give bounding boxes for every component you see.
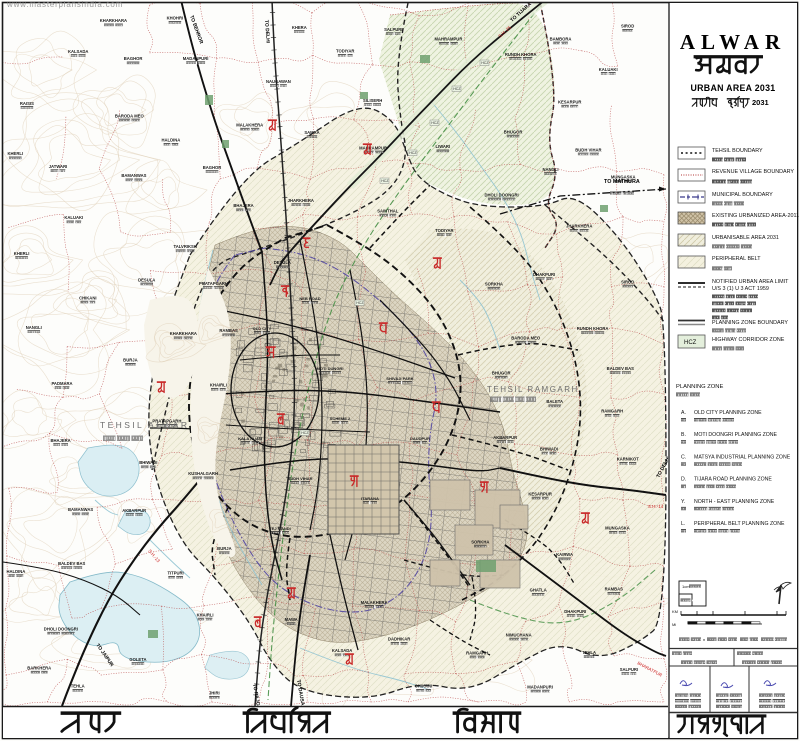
svg-text:MALAKHERA: MALAKHERA	[361, 600, 388, 605]
svg-text:BALDEV BAS: BALDEV BAS	[607, 366, 634, 371]
svg-text:KALUAKI: KALUAKI	[64, 215, 83, 220]
svg-text:MUNGASKA: MUNGASKA	[605, 526, 630, 531]
svg-text:TEHLA: TEHLA	[71, 684, 85, 689]
svg-text:TO MATHURA: TO MATHURA	[604, 179, 640, 185]
svg-text:BHAJERA: BHAJERA	[233, 203, 253, 208]
svg-text:EXISTING URBANIZED AREA-2011: EXISTING URBANIZED AREA-2011	[712, 213, 799, 219]
svg-text:RAMBAS: RAMBAS	[605, 587, 624, 592]
svg-text:TODIYAR: TODIYAR	[435, 228, 453, 233]
svg-text:HCZ: HCZ	[481, 61, 489, 65]
svg-text:TEJ MANDI: TEJ MANDI	[269, 526, 291, 531]
svg-text:BAMANWAS: BAMANWAS	[121, 173, 146, 178]
svg-text:SIROD: SIROD	[621, 24, 634, 29]
svg-text:BAGHOR: BAGHOR	[124, 56, 143, 61]
svg-text:SIROD: SIROD	[621, 279, 634, 284]
svg-text:REVENUE VILLAGE BOUNDARY: REVENUE VILLAGE BOUNDARY	[712, 169, 794, 175]
svg-text:KHERLI: KHERLI	[14, 251, 30, 256]
svg-text:TIJARA ROAD PLANNING ZONE: TIJARA ROAD PLANNING ZONE	[694, 477, 772, 483]
svg-text:HCZ: HCZ	[356, 301, 364, 305]
svg-text:JATWARI: JATWARI	[49, 164, 68, 169]
svg-text:RAISIS: RAISIS	[20, 101, 34, 106]
svg-text:GHATLA: GHATLA	[530, 588, 547, 593]
svg-text:SHIVAJI PARK: SHIVAJI PARK	[386, 376, 414, 381]
svg-text:DHOLI DOONGRI: DHOLI DOONGRI	[44, 627, 78, 632]
svg-text:JHARKHERA: JHARKHERA	[288, 198, 314, 203]
svg-text:ALWAR: ALWAR	[680, 30, 786, 54]
svg-text:SALPURI: SALPURI	[384, 27, 402, 32]
svg-text:DESULA: DESULA	[274, 260, 291, 265]
svg-text:NIMUCHANA: NIMUCHANA	[506, 632, 532, 637]
svg-text:HIGHWAY CORRIDOR ZONE: HIGHWAY CORRIDOR ZONE	[712, 337, 785, 343]
svg-text:KUSHALGARH: KUSHALGARH	[188, 471, 218, 476]
svg-text:TITPURI: TITPURI	[167, 571, 183, 576]
svg-text:www.masterplansindia.com: www.masterplansindia.com	[6, 0, 123, 9]
svg-text:MADANPURI: MADANPURI	[527, 684, 553, 689]
svg-text:KHOHRI: KHOHRI	[167, 16, 184, 21]
svg-text:BHIWADI: BHIWADI	[139, 460, 157, 465]
svg-text:BARODA MEO: BARODA MEO	[511, 336, 541, 341]
svg-text:URBAN AREA 2031: URBAN AREA 2031	[691, 83, 776, 93]
svg-text:SAMRA: SAMRA	[304, 130, 319, 135]
svg-text:D.: D.	[681, 477, 686, 483]
svg-text:KHERLI: KHERLI	[8, 151, 24, 156]
svg-text:BURJA: BURJA	[217, 546, 231, 551]
svg-text:MOTI DUNGRI: MOTI DUNGRI	[317, 366, 344, 371]
svg-text:DHAKPURI: DHAKPURI	[533, 272, 555, 277]
svg-text:MATSYA INDUSTRIAL PLANNING ZON: MATSYA INDUSTRIAL PLANNING ZONE	[694, 454, 791, 460]
svg-text:NANGLI: NANGLI	[26, 325, 42, 330]
svg-text:DAUDPUR: DAUDPUR	[410, 436, 430, 441]
svg-text:KALUAKI: KALUAKI	[599, 67, 618, 72]
svg-text:KHARKHARA: KHARKHARA	[170, 331, 197, 336]
svg-text:PRATAPGARH: PRATAPGARH	[199, 281, 228, 286]
svg-text:DHAKPURI: DHAKPURI	[564, 609, 586, 614]
svg-text:CHIKANI: CHIKANI	[415, 684, 432, 689]
svg-text:TEHSIL BOUNDARY: TEHSIL BOUNDARY	[712, 148, 763, 154]
svg-text:MADANPURI: MADANPURI	[183, 56, 209, 61]
svg-text:RAMBAS: RAMBAS	[219, 328, 238, 333]
svg-text:BAMBORA: BAMBORA	[550, 36, 572, 41]
svg-text:HCZ: HCZ	[381, 179, 389, 183]
svg-text:L.: L.	[681, 521, 685, 527]
svg-text:JHARKHERA: JHARKHERA	[566, 224, 592, 229]
svg-text:2031: 2031	[752, 98, 769, 107]
svg-text:AKBARPUR: AKBARPUR	[122, 508, 146, 513]
svg-text:PERIPHERAL BELT PLANNING ZONE: PERIPHERAL BELT PLANNING ZONE	[694, 521, 785, 527]
svg-text:LIWARI: LIWARI	[435, 144, 450, 149]
svg-text:KHERA: KHERA	[292, 25, 307, 30]
svg-text:KAIRWA: KAIRWA	[556, 552, 573, 557]
svg-text:MAWA: MAWA	[285, 617, 298, 622]
svg-text:PERIPHERAL BELT: PERIPHERAL BELT	[712, 256, 761, 262]
svg-text:KALSADA: KALSADA	[332, 648, 352, 653]
svg-text:Mi: Mi	[672, 622, 676, 627]
svg-text:TODIYAR: TODIYAR	[336, 49, 354, 54]
svg-text:BURJA: BURJA	[123, 358, 137, 363]
svg-text:DESULA: DESULA	[138, 277, 155, 282]
svg-text:TEHLA: TEHLA	[582, 650, 596, 655]
svg-text:SALPURI: SALPURI	[620, 667, 638, 672]
svg-text:S.H.-14: S.H.-14	[648, 504, 664, 509]
svg-text:NORTH - EAST PLANNING ZONE: NORTH - EAST PLANNING ZONE	[694, 499, 775, 505]
svg-text:BHAJERA: BHAJERA	[50, 438, 70, 443]
svg-text:MOTI DOONGRI PLANNING ZONE: MOTI DOONGRI PLANNING ZONE	[694, 432, 778, 438]
svg-text:SORKHA: SORKHA	[485, 282, 503, 287]
svg-text:KALA KUAN: KALA KUAN	[238, 436, 262, 441]
svg-text:NANGLI: NANGLI	[542, 167, 558, 172]
svg-text:BHIWADI: BHIWADI	[540, 446, 558, 451]
svg-text:NOTIFIED URBAN AREA LIMIT: NOTIFIED URBAN AREA LIMIT	[712, 279, 789, 285]
svg-text:RUNDH KHORA: RUNDH KHORA	[505, 52, 537, 57]
svg-text:GOLETA: GOLETA	[129, 657, 146, 662]
svg-text:NEB ROAD: NEB ROAD	[299, 296, 320, 301]
svg-text:BUDH VIHAR: BUDH VIHAR	[287, 476, 312, 481]
svg-text:URBANISABLE AREA 2031: URBANISABLE AREA 2031	[712, 235, 779, 241]
svg-text:OLD CITY: OLD CITY	[253, 326, 272, 331]
svg-text:RAMGARH: RAMGARH	[466, 650, 488, 655]
svg-text:SAINTHAL: SAINTHAL	[377, 208, 399, 213]
svg-text:RUNDH KHORA: RUNDH KHORA	[577, 326, 609, 331]
svg-text:TEHSIL RAMGARH: TEHSIL RAMGARH	[487, 385, 579, 394]
svg-text:BALETA: BALETA	[546, 399, 563, 404]
svg-text:KESARPUR: KESARPUR	[558, 100, 582, 105]
svg-text:MAHRAMPUR: MAHRAMPUR	[434, 37, 462, 42]
svg-text:KALSADA: KALSADA	[68, 49, 88, 54]
svg-text:AKBARPUR: AKBARPUR	[493, 435, 517, 440]
svg-text:PLANNING ZONE BOUNDARY: PLANNING ZONE BOUNDARY	[712, 320, 788, 326]
svg-text:SORKHA: SORKHA	[471, 539, 489, 544]
svg-text:BARKHERA: BARKHERA	[27, 666, 51, 671]
svg-text:BARODA MEO: BARODA MEO	[115, 113, 145, 118]
svg-text:1cm: 1cm	[682, 584, 690, 589]
svg-text:KESARPUR: KESARPUR	[528, 491, 552, 496]
svg-text:HCZ: HCZ	[409, 151, 417, 155]
svg-text:PLANNING ZONE: PLANNING ZONE	[676, 384, 723, 390]
svg-text:RAMGARH: RAMGARH	[601, 409, 623, 414]
svg-text:HCZ: HCZ	[684, 340, 697, 346]
svg-text:OLD CITY PLANNING ZONE: OLD CITY PLANNING ZONE	[694, 410, 762, 416]
svg-text:NAUGAWAN: NAUGAWAN	[266, 79, 291, 84]
svg-text:U/S 3 (1) U 3 ACT 1959: U/S 3 (1) U 3 ACT 1959	[712, 286, 769, 292]
svg-text:KHAIRLI: KHAIRLI	[197, 612, 214, 617]
svg-text:BALDEV BAS: BALDEV BAS	[58, 561, 85, 566]
svg-text:BAGHOR: BAGHOR	[203, 165, 222, 170]
svg-text:CHIKANI: CHIKANI	[79, 295, 96, 300]
svg-text:TEHSIL ALWAR: TEHSIL ALWAR	[100, 420, 189, 430]
svg-text:KHARKHARA: KHARKHARA	[100, 18, 127, 23]
svg-text:Y.: Y.	[681, 499, 685, 505]
svg-text:JHIRI: JHIRI	[209, 691, 220, 696]
svg-text:n: n	[703, 637, 705, 642]
svg-text:MUNICIPAL BOUNDARY: MUNICIPAL BOUNDARY	[712, 192, 773, 198]
svg-text:MAHRAMPUR: MAHRAMPUR	[359, 145, 387, 150]
svg-text:PADMARA: PADMARA	[51, 381, 72, 386]
svg-text:HCZ: HCZ	[453, 87, 461, 91]
svg-text:DHOLI DOONGRI: DHOLI DOONGRI	[484, 192, 518, 197]
svg-text:SILISERH: SILISERH	[363, 98, 382, 103]
svg-text:DADHIKAR: DADHIKAR	[388, 637, 410, 642]
svg-text:ITARANA: ITARANA	[361, 496, 379, 501]
svg-text:BHUGOR: BHUGOR	[504, 129, 523, 134]
svg-text:BAMANWAS: BAMANWAS	[68, 507, 93, 512]
svg-text:BHUGOR: BHUGOR	[492, 371, 511, 376]
svg-text:SCHEME 2: SCHEME 2	[330, 416, 351, 421]
svg-text:B.: B.	[681, 432, 686, 438]
svg-text:HCZ: HCZ	[431, 121, 439, 125]
svg-text:A.: A.	[681, 410, 686, 416]
svg-text:HCZ: HCZ	[301, 431, 309, 435]
svg-text:C.: C.	[681, 454, 686, 460]
svg-text:KARNIKOT: KARNIKOT	[617, 457, 640, 462]
svg-text:KHAIRLI: KHAIRLI	[210, 383, 227, 388]
svg-text:TALVRIKSH: TALVRIKSH	[174, 244, 197, 249]
svg-text:HALDINA: HALDINA	[6, 569, 25, 574]
svg-text:BUDH VIHAR: BUDH VIHAR	[575, 147, 601, 152]
svg-text:HALDINA: HALDINA	[161, 138, 180, 143]
svg-text:MALAKHERA: MALAKHERA	[236, 123, 263, 128]
svg-text:KM: KM	[672, 609, 678, 614]
